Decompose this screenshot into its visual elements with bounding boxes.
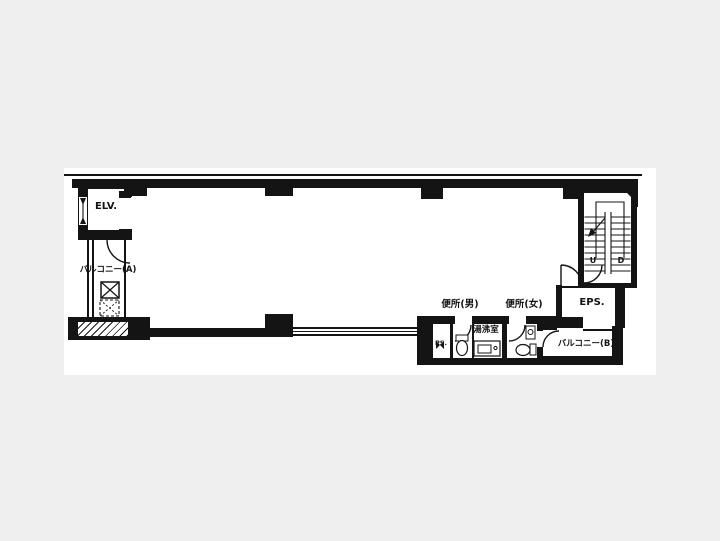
eps-right-wall bbox=[615, 287, 625, 328]
toilet-women-door-gap bbox=[509, 316, 526, 326]
outer-wall-bottom-left bbox=[150, 328, 268, 337]
eps-bottom-wall bbox=[551, 317, 583, 328]
balcony-a-label: バルコニー(A) bbox=[68, 266, 148, 275]
column-top-2 bbox=[265, 179, 293, 196]
stair-down-label: D bbox=[615, 257, 627, 265]
floor-plan: ELV. バルコニー(A) 便所(男) 便所(女) 湯沸室 EPS. バルコニー… bbox=[0, 0, 720, 541]
column-top-3 bbox=[421, 179, 443, 199]
outer-wall-bottom-right bbox=[543, 356, 623, 365]
toilet-men-label: 便所(男) bbox=[434, 300, 486, 310]
elevator-label: ELV. bbox=[86, 202, 126, 212]
balcony-b-label: バルコニー(B) bbox=[548, 340, 624, 349]
elevator-door-jamb-bottom bbox=[119, 229, 131, 236]
pipe-space-label: PS. bbox=[431, 340, 451, 347]
column-bottom bbox=[265, 314, 293, 337]
outer-wall-top bbox=[72, 179, 638, 188]
eps-label: EPS. bbox=[570, 298, 614, 308]
toilet-women-room bbox=[507, 324, 537, 358]
balcony-a-inner-edge bbox=[124, 240, 126, 318]
elevator-door-jamb-top bbox=[119, 191, 131, 198]
window-wall-bottom bbox=[293, 327, 418, 336]
balcony-a-outer-edge bbox=[87, 240, 94, 318]
balcony-b-top-line bbox=[583, 329, 612, 331]
parapet-line-top bbox=[64, 174, 642, 176]
toilet-women-label: 便所(女) bbox=[498, 300, 550, 310]
balcony-a-slab-hatch bbox=[78, 322, 128, 336]
toilet-men-door-gap bbox=[455, 316, 472, 326]
stair-up-label: U bbox=[587, 257, 599, 265]
kitchenette-label: 湯沸室 bbox=[467, 326, 505, 335]
stairwell-room bbox=[584, 193, 631, 283]
